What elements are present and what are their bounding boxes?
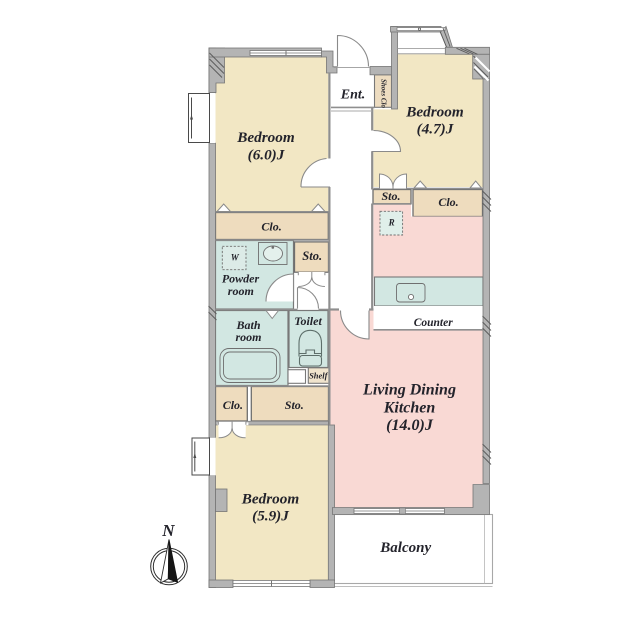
svg-text:Shelf: Shelf bbox=[309, 371, 329, 381]
svg-text:Bedroom: Bedroom bbox=[236, 129, 295, 146]
svg-text:W: W bbox=[231, 253, 240, 263]
svg-text:Kitchen: Kitchen bbox=[383, 400, 436, 417]
svg-text:room: room bbox=[235, 330, 261, 344]
svg-text:Bedroom: Bedroom bbox=[241, 491, 300, 508]
svg-text:N: N bbox=[161, 521, 175, 540]
svg-text:Toilet: Toilet bbox=[294, 314, 322, 328]
svg-text:Clo.: Clo. bbox=[223, 398, 243, 412]
svg-text:room: room bbox=[228, 284, 254, 298]
svg-text:Bedroom: Bedroom bbox=[405, 104, 464, 121]
svg-text:Sto.: Sto. bbox=[302, 249, 322, 263]
svg-text:Living Dining: Living Dining bbox=[362, 382, 456, 399]
svg-text:(5.9)J: (5.9)J bbox=[252, 508, 289, 525]
svg-text:Balcony: Balcony bbox=[379, 540, 431, 556]
svg-text:Sto.: Sto. bbox=[285, 398, 304, 412]
svg-text:Shoes Clo: Shoes Clo bbox=[380, 79, 388, 108]
svg-text:Counter: Counter bbox=[414, 317, 454, 329]
svg-text:(14.0)J: (14.0)J bbox=[386, 417, 434, 434]
svg-text:Ent.: Ent. bbox=[340, 87, 366, 102]
svg-text:(6.0)J: (6.0)J bbox=[248, 147, 285, 164]
svg-text:Sto.: Sto. bbox=[381, 189, 400, 203]
svg-text:Clo.: Clo. bbox=[261, 220, 281, 234]
svg-text:R: R bbox=[388, 218, 395, 228]
svg-text:(4.7)J: (4.7)J bbox=[417, 121, 454, 138]
svg-text:Clo.: Clo. bbox=[438, 195, 458, 209]
